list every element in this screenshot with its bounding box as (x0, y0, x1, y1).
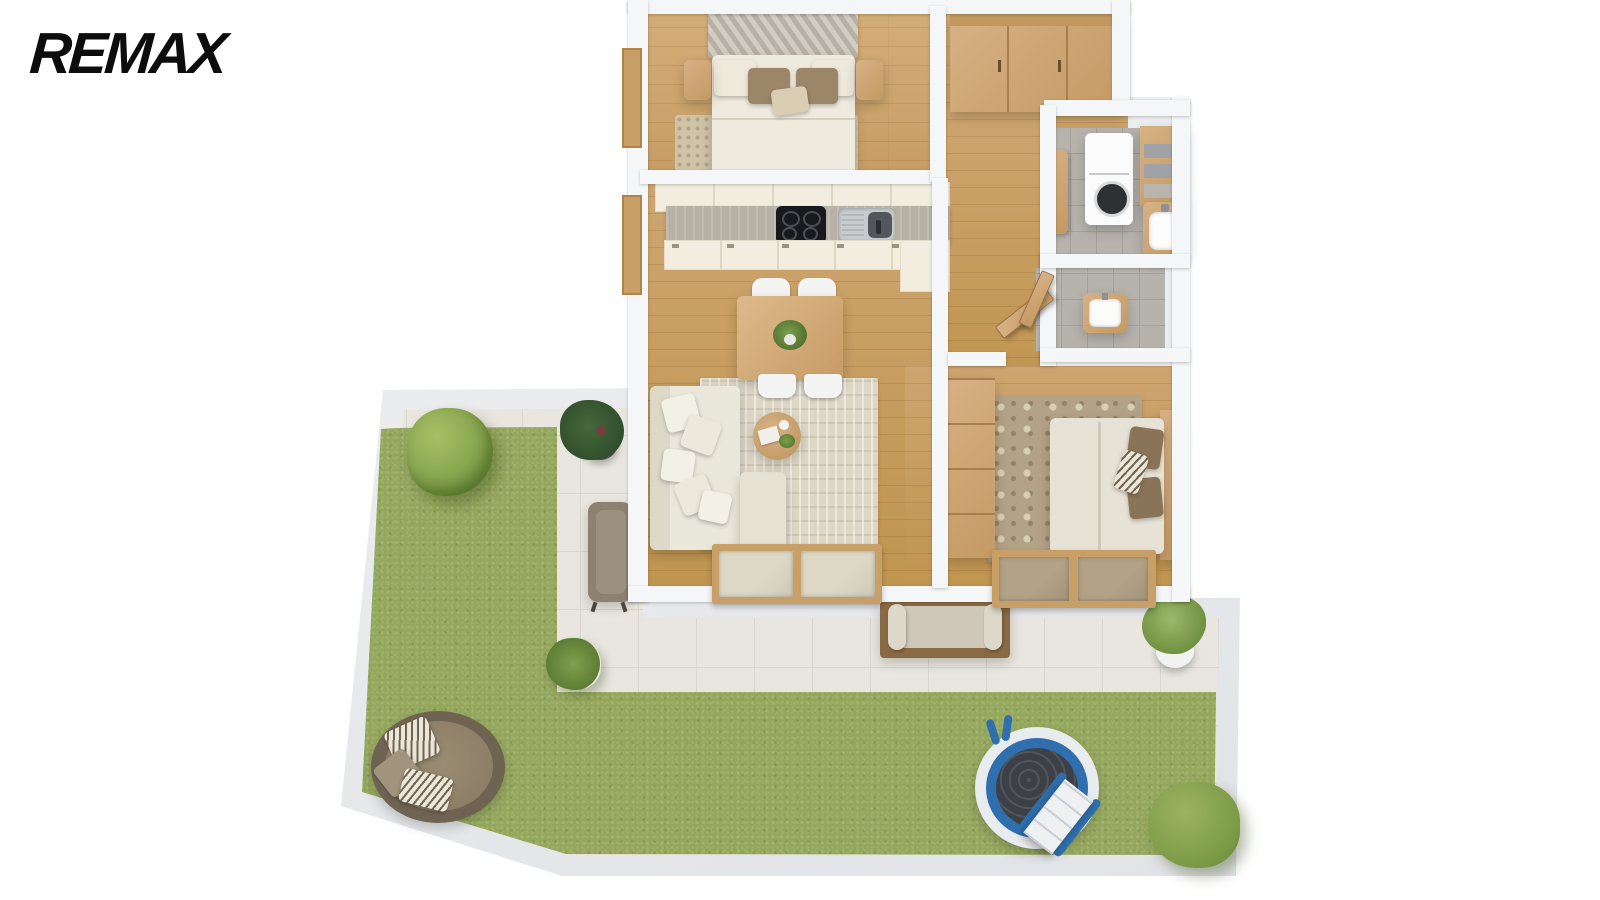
wall-bedroom1-closet (930, 6, 946, 182)
wardrobe-door-seam (1066, 24, 1068, 112)
wall-laundry-top (1044, 100, 1190, 116)
wall-wc-bedroom2 (1040, 348, 1190, 362)
bench-bolster (984, 604, 1002, 650)
chevron-headboard (708, 10, 858, 58)
dining-chair (758, 374, 796, 398)
wc-vanity (1083, 293, 1127, 333)
nightstand-right (856, 60, 883, 100)
bed-accent-pillow (770, 86, 809, 117)
small-bush (1148, 782, 1240, 868)
palm-plant (545, 638, 601, 690)
wc-faucet (1102, 293, 1108, 300)
kitchen-sink (838, 208, 896, 242)
glass-pane (801, 551, 875, 597)
wall-closet-right (1112, 0, 1130, 100)
coffee-table-plant (779, 434, 795, 448)
sofa-chaise (740, 472, 786, 550)
window-bedroom-2 (992, 550, 1156, 608)
wardrobe-door-seam (1007, 24, 1009, 112)
washer-panel (1089, 173, 1129, 175)
bed-blanket-seam (712, 118, 855, 120)
armchair-leg (591, 602, 598, 613)
plant-flower (596, 426, 606, 435)
wall-hall-living (932, 178, 948, 588)
duvet-fold (1098, 422, 1101, 550)
window-left-bedroom-1 (622, 48, 642, 148)
dining-chair (804, 374, 842, 398)
wall-laundry-wc (1040, 254, 1190, 268)
washer-drum-door (1094, 181, 1130, 217)
armchair-seat (596, 510, 626, 594)
plant-vase (784, 334, 796, 345)
laundry-faucet (1161, 204, 1169, 212)
glass-pane (719, 551, 793, 597)
nightstand-left (684, 60, 711, 100)
cooktop (776, 206, 826, 244)
above-ground-pool (975, 727, 1099, 849)
bench-bolster (888, 604, 906, 650)
wardrobe-top-shelf (950, 14, 1125, 26)
outdoor-armchair (588, 502, 632, 612)
wardrobe-handle (998, 60, 1001, 72)
bedroom-2-dresser (945, 378, 995, 558)
wall-hall-laundry (1040, 105, 1056, 366)
wall-bedroom1-kitchen (640, 170, 940, 184)
plant-leaves (560, 400, 624, 460)
glass-pane (1078, 557, 1148, 601)
glass-pane (999, 557, 1069, 601)
armchair-leg (621, 602, 628, 613)
burner (782, 211, 800, 227)
coffee-table-candle (779, 420, 789, 430)
remax-logo: REMAX (28, 20, 227, 87)
sliding-glass-door-living (712, 544, 882, 604)
wall-top (628, 0, 1130, 14)
burner (803, 227, 818, 241)
dining-table (737, 296, 843, 380)
wardrobe (950, 14, 1125, 112)
wardrobe-handle (1058, 60, 1061, 72)
sink-faucet (876, 220, 881, 234)
sink-drainboard (842, 214, 864, 236)
sofa-pillow (697, 489, 733, 525)
potted-plant-dark (560, 400, 624, 466)
burner (803, 211, 821, 227)
washing-machine (1085, 133, 1133, 225)
coffee-table (753, 412, 801, 460)
round-daybed (371, 711, 505, 823)
coffee-table-book (757, 426, 780, 446)
window-left-living (622, 195, 642, 295)
garden-bench (880, 600, 1010, 658)
burner (782, 227, 797, 241)
wc-sink (1089, 299, 1121, 327)
wall-bedroom2-top-left (948, 352, 1006, 366)
